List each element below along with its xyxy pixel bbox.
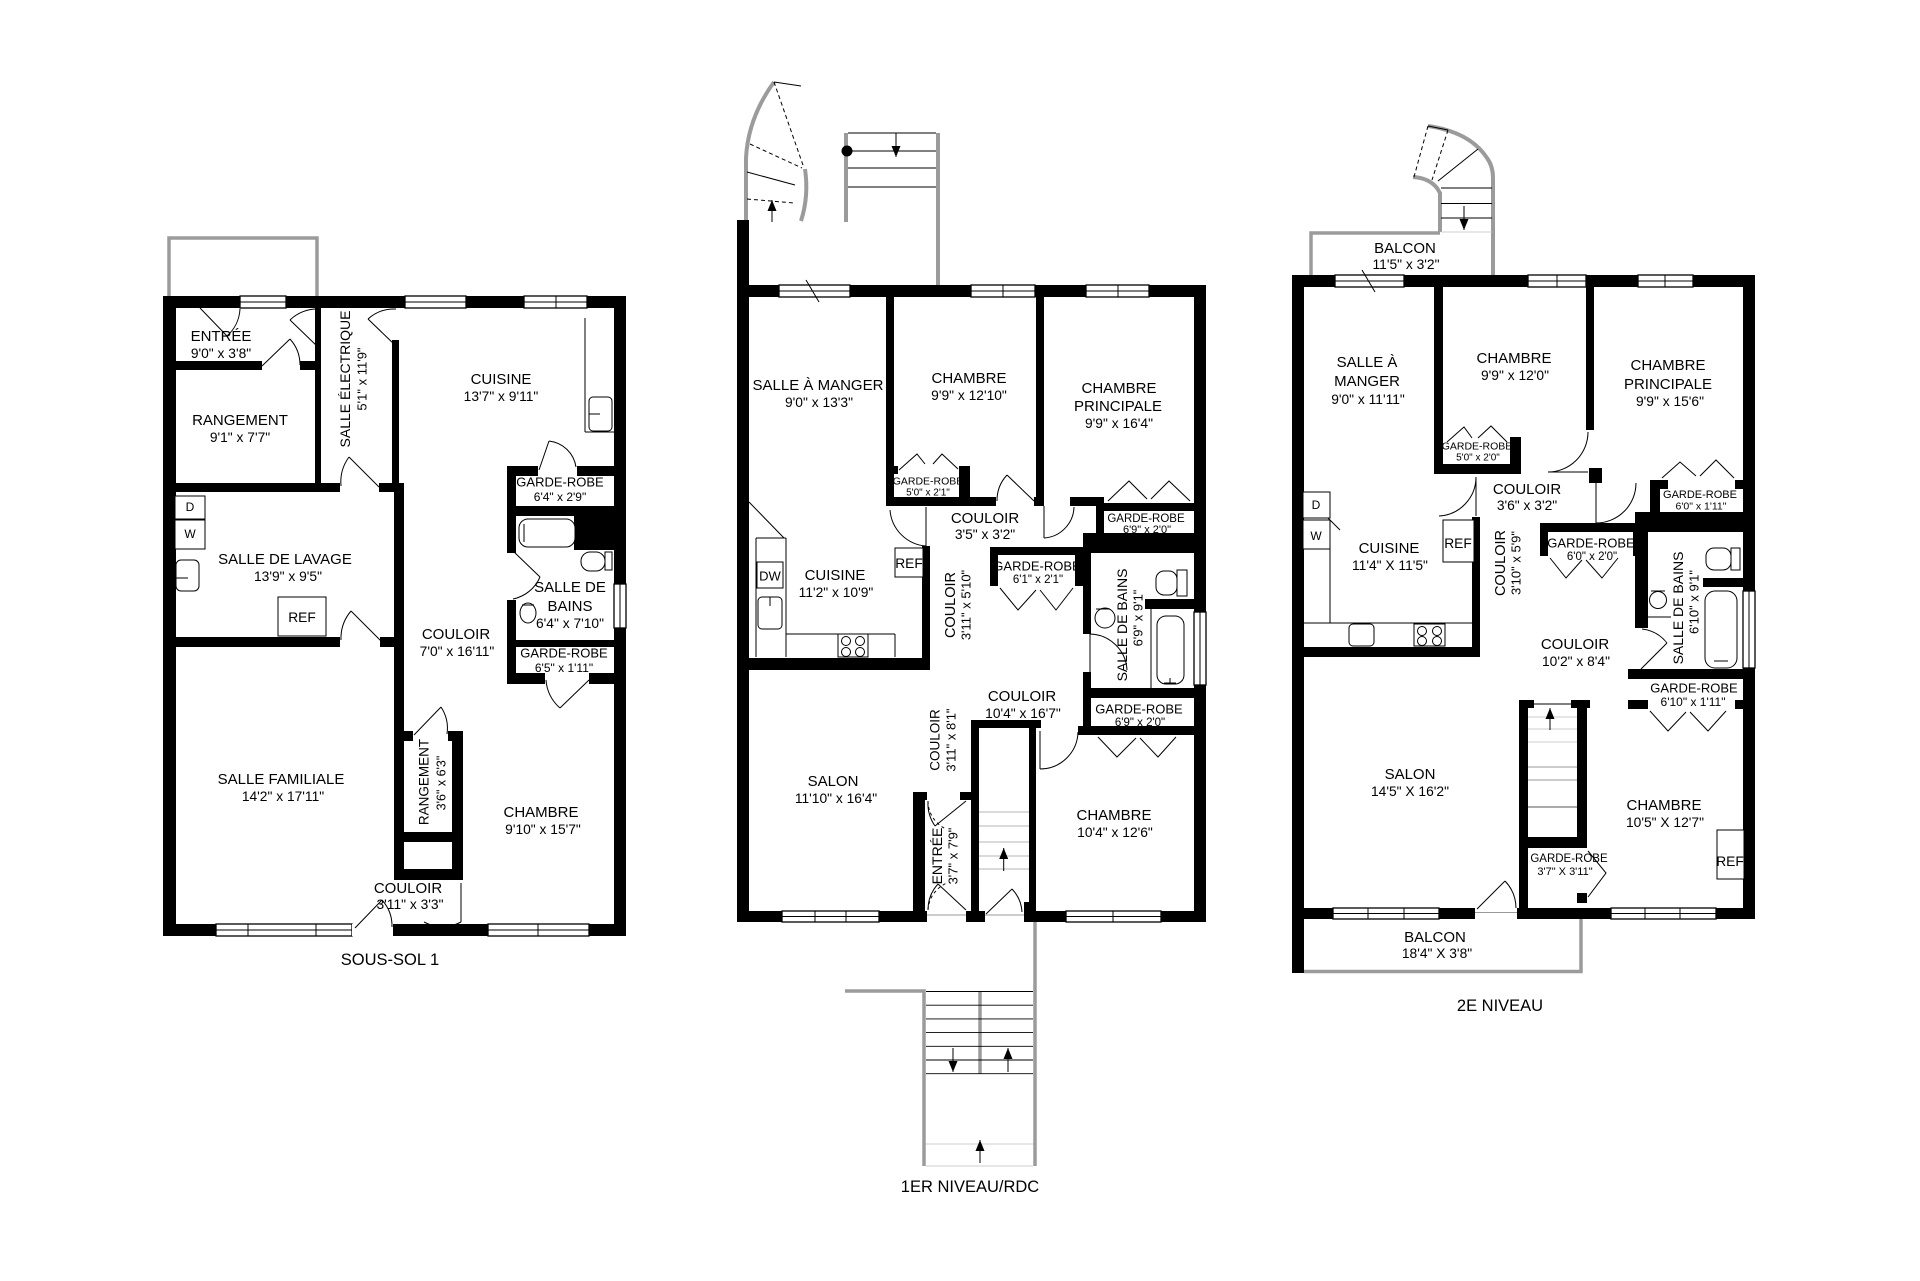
svg-text:COULOIR: COULOIR bbox=[374, 880, 443, 897]
svg-text:SALLE À: SALLE À bbox=[1337, 354, 1398, 371]
svg-text:COULOIR: COULOIR bbox=[943, 572, 959, 638]
svg-text:3'11" x 5'10": 3'11" x 5'10" bbox=[959, 569, 974, 640]
svg-text:SALLE DE BAINS: SALLE DE BAINS bbox=[1670, 552, 1686, 665]
svg-text:9'0" x 11'11": 9'0" x 11'11" bbox=[1331, 392, 1405, 407]
svg-text:3'6" x 3'2": 3'6" x 3'2" bbox=[1497, 498, 1557, 513]
svg-text:CHAMBRE: CHAMBRE bbox=[503, 804, 578, 821]
svg-text:CHAMBRE: CHAMBRE bbox=[1076, 807, 1151, 824]
svg-text:CHAMBRE: CHAMBRE bbox=[1630, 357, 1705, 374]
svg-text:REF: REF bbox=[288, 610, 316, 625]
svg-text:9'1" x 7'7": 9'1" x 7'7" bbox=[210, 430, 270, 445]
svg-text:6'0" x 2'0": 6'0" x 2'0" bbox=[1567, 551, 1617, 563]
svg-text:SALLE DE: SALLE DE bbox=[534, 579, 606, 596]
svg-text:GARDE-ROBE: GARDE-ROBE bbox=[1530, 853, 1608, 865]
svg-text:5'1" x 11'9": 5'1" x 11'9" bbox=[355, 347, 370, 410]
svg-text:COULOIR: COULOIR bbox=[928, 709, 943, 771]
svg-text:COULOIR: COULOIR bbox=[422, 626, 491, 643]
svg-text:9'9" x 12'10": 9'9" x 12'10" bbox=[931, 388, 1007, 403]
svg-text:PRINCIPALE: PRINCIPALE bbox=[1624, 376, 1712, 393]
svg-text:SALLE À MANGER: SALLE À MANGER bbox=[753, 377, 884, 394]
svg-text:9'10" x 15'7": 9'10" x 15'7" bbox=[505, 822, 581, 837]
svg-text:3'5" x 3'2": 3'5" x 3'2" bbox=[955, 527, 1015, 542]
svg-text:SOUS-SOL 1: SOUS-SOL 1 bbox=[341, 951, 439, 969]
svg-text:GARDE-ROBE: GARDE-ROBE bbox=[1547, 536, 1635, 551]
svg-text:D: D bbox=[1312, 498, 1321, 512]
svg-text:GARDE-ROBE: GARDE-ROBE bbox=[1663, 489, 1737, 501]
svg-text:COULOIR: COULOIR bbox=[951, 510, 1020, 527]
svg-text:SALLE DE LAVAGE: SALLE DE LAVAGE bbox=[218, 551, 352, 568]
svg-text:3'7" X 3'11": 3'7" X 3'11" bbox=[1537, 866, 1592, 878]
svg-text:GARDE-ROBE: GARDE-ROBE bbox=[1650, 681, 1738, 696]
svg-text:9'0" x 13'3": 9'0" x 13'3" bbox=[785, 395, 853, 410]
svg-text:BALCON: BALCON bbox=[1404, 929, 1466, 946]
svg-text:9'0" x 3'8": 9'0" x 3'8" bbox=[191, 346, 251, 361]
svg-text:7'0" x 16'11": 7'0" x 16'11" bbox=[420, 644, 495, 659]
svg-text:3'10" x 5'9": 3'10" x 5'9" bbox=[1509, 531, 1524, 595]
svg-text:PRINCIPALE: PRINCIPALE bbox=[1074, 398, 1162, 415]
svg-text:SALON: SALON bbox=[808, 773, 859, 790]
svg-text:D: D bbox=[186, 500, 195, 514]
svg-text:GARDE-ROBE: GARDE-ROBE bbox=[1442, 441, 1513, 453]
svg-text:CUISINE: CUISINE bbox=[1359, 540, 1420, 557]
svg-text:6'5" x 1'11": 6'5" x 1'11" bbox=[535, 661, 593, 675]
svg-text:W: W bbox=[1310, 529, 1322, 543]
svg-text:1ER NIVEAU/RDC: 1ER NIVEAU/RDC bbox=[901, 1178, 1040, 1196]
svg-text:10'4" x 16'7": 10'4" x 16'7" bbox=[985, 706, 1061, 721]
svg-text:6'1" x 2'1": 6'1" x 2'1" bbox=[1013, 574, 1063, 586]
svg-text:CHAMBRE: CHAMBRE bbox=[1476, 350, 1551, 367]
svg-text:3'7" x 7'9": 3'7" x 7'9" bbox=[946, 827, 961, 884]
svg-text:6'9" x 2'0": 6'9" x 2'0" bbox=[1115, 717, 1165, 729]
svg-text:GARDE-ROBE: GARDE-ROBE bbox=[893, 476, 964, 488]
svg-text:COULOIR: COULOIR bbox=[1541, 636, 1610, 653]
svg-text:CHAMBRE: CHAMBRE bbox=[931, 370, 1006, 387]
svg-text:6'9" x 2'0": 6'9" x 2'0" bbox=[1123, 524, 1171, 536]
svg-text:SALLE FAMILIALE: SALLE FAMILIALE bbox=[218, 771, 345, 788]
svg-text:COULOIR: COULOIR bbox=[1493, 481, 1562, 498]
svg-text:DW: DW bbox=[759, 569, 781, 584]
svg-text:6'10" x 1'11": 6'10" x 1'11" bbox=[1661, 695, 1726, 709]
svg-text:2E NIVEAU: 2E NIVEAU bbox=[1457, 997, 1543, 1015]
svg-text:10'5" X 12'7": 10'5" X 12'7" bbox=[1626, 815, 1704, 830]
svg-text:6'0" x 1'11": 6'0" x 1'11" bbox=[1676, 501, 1727, 513]
svg-text:6'9" x 9'1": 6'9" x 9'1" bbox=[1131, 589, 1146, 646]
svg-text:CHAMBRE: CHAMBRE bbox=[1081, 380, 1156, 397]
svg-text:GARDE-ROBE: GARDE-ROBE bbox=[516, 475, 604, 490]
svg-text:SALLE DE BAINS: SALLE DE BAINS bbox=[1114, 569, 1130, 682]
svg-text:11'4" X 11'5": 11'4" X 11'5" bbox=[1352, 558, 1428, 573]
svg-text:9'9" x 16'4": 9'9" x 16'4" bbox=[1085, 416, 1153, 431]
svg-text:RANGEMENT: RANGEMENT bbox=[417, 739, 432, 825]
svg-text:SALON: SALON bbox=[1385, 766, 1436, 783]
svg-text:ENTRÉE: ENTRÉE bbox=[191, 328, 252, 345]
svg-text:GARDE-ROBE: GARDE-ROBE bbox=[1095, 702, 1183, 717]
svg-text:COULOIR: COULOIR bbox=[988, 688, 1057, 705]
svg-text:BALCON: BALCON bbox=[1374, 240, 1436, 257]
svg-text:SALLE ÉLECTRIQUE: SALLE ÉLECTRIQUE bbox=[337, 311, 353, 448]
svg-text:11'5" x 3'2": 11'5" x 3'2" bbox=[1373, 257, 1440, 272]
svg-text:5'0" x 2'1": 5'0" x 2'1" bbox=[906, 488, 950, 499]
svg-text:BAINS: BAINS bbox=[547, 598, 592, 615]
svg-text:CUISINE: CUISINE bbox=[805, 567, 866, 584]
svg-text:6'4" x 2'9": 6'4" x 2'9" bbox=[534, 490, 586, 504]
svg-text:GARDE-ROBE: GARDE-ROBE bbox=[993, 559, 1081, 574]
svg-text:MANGER: MANGER bbox=[1334, 373, 1400, 390]
svg-text:3'11" x 3'3": 3'11" x 3'3" bbox=[377, 897, 444, 912]
svg-text:18'4" X 3'8": 18'4" X 3'8" bbox=[1402, 946, 1472, 961]
svg-text:W: W bbox=[184, 527, 196, 541]
svg-text:5'0" x 2'0": 5'0" x 2'0" bbox=[1456, 453, 1500, 464]
svg-text:COULOIR: COULOIR bbox=[1493, 530, 1509, 596]
svg-text:11'10" x 16'4": 11'10" x 16'4" bbox=[795, 791, 877, 806]
svg-text:GARDE-ROBE: GARDE-ROBE bbox=[520, 646, 608, 661]
svg-text:CUISINE: CUISINE bbox=[471, 371, 532, 388]
svg-text:ENTRÉE: ENTRÉE bbox=[929, 828, 945, 885]
svg-text:3'11" x 8'1": 3'11" x 8'1" bbox=[944, 708, 959, 771]
svg-text:REF: REF bbox=[1716, 854, 1744, 869]
svg-text:CHAMBRE: CHAMBRE bbox=[1626, 797, 1701, 814]
svg-text:9'9" x 12'0": 9'9" x 12'0" bbox=[1481, 368, 1549, 383]
svg-text:10'2" x 8'4": 10'2" x 8'4" bbox=[1542, 654, 1610, 669]
svg-text:6'10" x 9'1": 6'10" x 9'1" bbox=[1687, 570, 1702, 634]
svg-text:3'6" x 6'3": 3'6" x 6'3" bbox=[434, 756, 448, 811]
svg-text:9'9" x 15'6": 9'9" x 15'6" bbox=[1636, 394, 1704, 409]
svg-text:REF: REF bbox=[1444, 536, 1472, 551]
svg-text:13'9" x 9'5": 13'9" x 9'5" bbox=[254, 569, 322, 584]
svg-text:11'2" x 10'9": 11'2" x 10'9" bbox=[799, 585, 874, 600]
svg-text:14'5" X 16'2": 14'5" X 16'2" bbox=[1371, 784, 1449, 799]
svg-text:13'7" x 9'11": 13'7" x 9'11" bbox=[464, 389, 539, 404]
svg-text:14'2" x 17'11": 14'2" x 17'11" bbox=[242, 789, 324, 804]
svg-text:REF: REF bbox=[895, 556, 923, 571]
svg-text:RANGEMENT: RANGEMENT bbox=[192, 412, 288, 429]
svg-text:6'4" x 7'10": 6'4" x 7'10" bbox=[536, 616, 604, 631]
svg-text:10'4" x 12'6": 10'4" x 12'6" bbox=[1077, 825, 1153, 840]
